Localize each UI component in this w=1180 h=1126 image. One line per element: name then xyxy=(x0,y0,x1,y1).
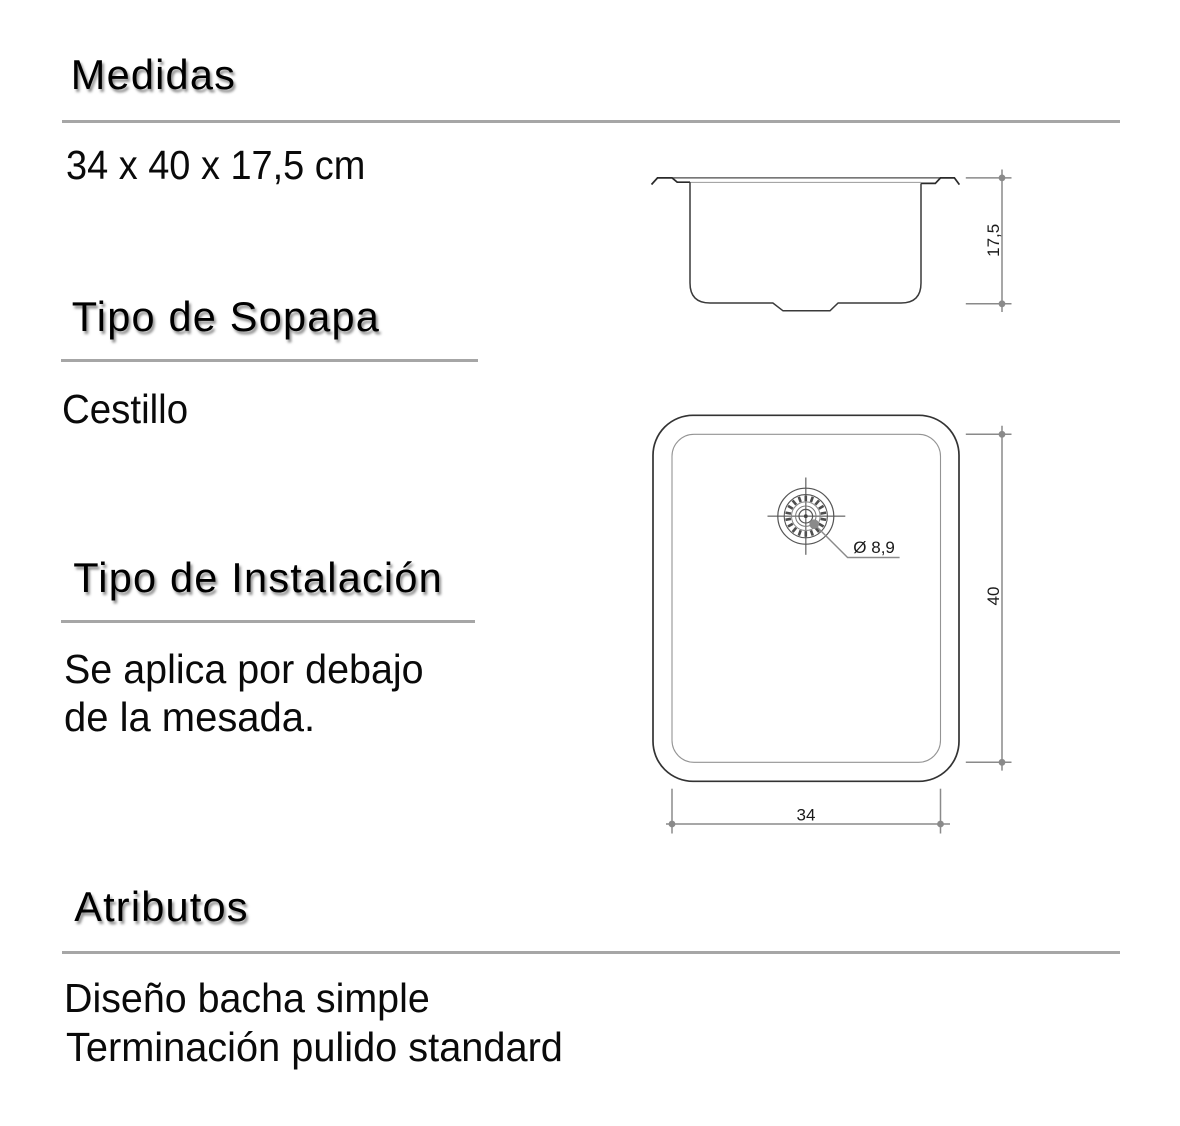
svg-text:17,5: 17,5 xyxy=(984,224,1003,257)
svg-text:Ø 8,9: Ø 8,9 xyxy=(853,538,895,557)
svg-text:34: 34 xyxy=(797,805,816,824)
svg-text:40: 40 xyxy=(984,587,1003,606)
